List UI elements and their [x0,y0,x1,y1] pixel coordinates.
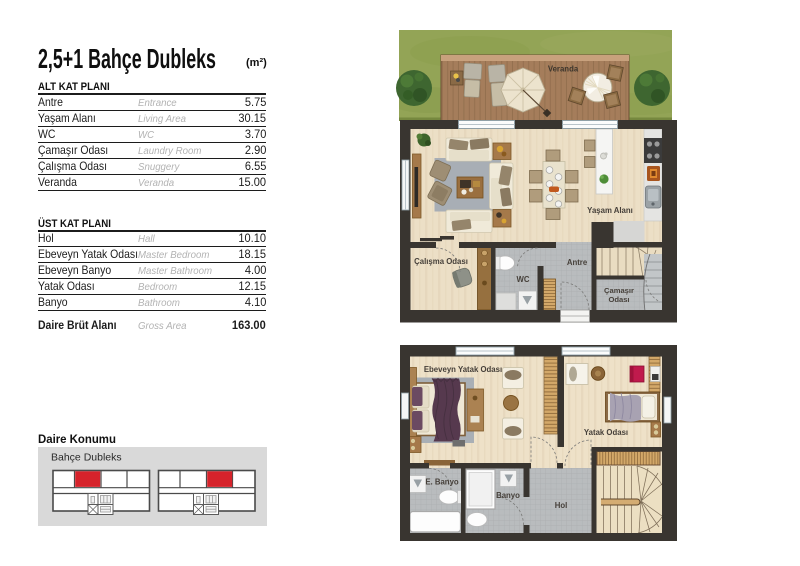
svg-text:Çalışma Odası: Çalışma Odası [414,257,468,266]
svg-text:Banyo: Banyo [496,491,520,500]
svg-text:Odası: Odası [608,295,629,304]
svg-text:Veranda: Veranda [548,65,579,74]
svg-text:WC: WC [517,275,530,284]
svg-text:E. Banyo: E. Banyo [425,478,459,487]
svg-text:Çamaşır: Çamaşır [604,286,634,295]
svg-text:Yaşam Alanı: Yaşam Alanı [587,206,633,215]
svg-text:Bahçe Dubleks: Bahçe Dubleks [51,452,122,464]
svg-text:Ebeveyn Yatak Odası: Ebeveyn Yatak Odası [424,365,502,374]
svg-text:Hol: Hol [555,501,568,510]
svg-text:Yatak Odası: Yatak Odası [584,428,628,437]
svg-text:Antre: Antre [567,258,588,267]
